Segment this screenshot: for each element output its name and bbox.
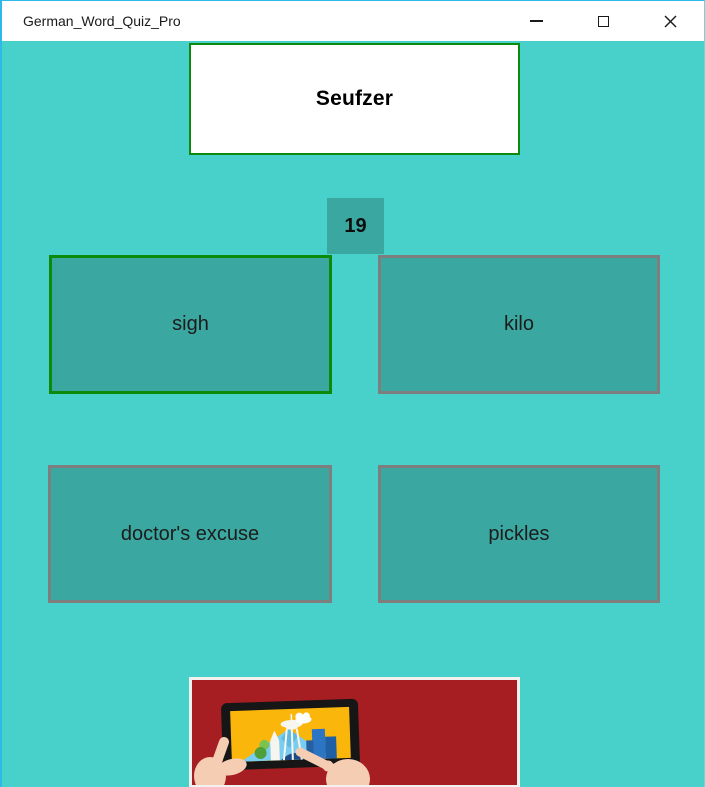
app-window: German_Word_Quiz_Pro Seufzer 19 sigh kil… xyxy=(0,0,705,787)
answer-label: doctor's excuse xyxy=(121,523,259,546)
hands-holding-tablet-illustration xyxy=(192,680,517,785)
window-title: German_Word_Quiz_Pro xyxy=(2,1,503,41)
answer-button-1[interactable]: sigh xyxy=(49,255,332,394)
question-card: Seufzer xyxy=(189,43,520,155)
answer-label: sigh xyxy=(172,313,209,336)
counter-value: 19 xyxy=(344,215,366,238)
caption-buttons xyxy=(503,1,704,41)
minimize-button[interactable] xyxy=(503,1,570,41)
ad-banner[interactable] xyxy=(189,677,520,787)
answer-button-2[interactable]: kilo xyxy=(378,255,660,394)
answer-button-4[interactable]: pickles xyxy=(378,465,660,603)
title-bar: German_Word_Quiz_Pro xyxy=(2,1,704,41)
minimize-icon xyxy=(530,20,543,22)
score-counter: 19 xyxy=(327,198,384,254)
question-word: Seufzer xyxy=(316,87,393,111)
answer-label: kilo xyxy=(504,313,534,336)
maximize-icon xyxy=(598,16,609,27)
answer-button-3[interactable]: doctor's excuse xyxy=(48,465,332,603)
close-button[interactable] xyxy=(637,1,704,41)
close-icon xyxy=(664,15,677,28)
maximize-button[interactable] xyxy=(570,1,637,41)
answer-label: pickles xyxy=(488,523,549,546)
